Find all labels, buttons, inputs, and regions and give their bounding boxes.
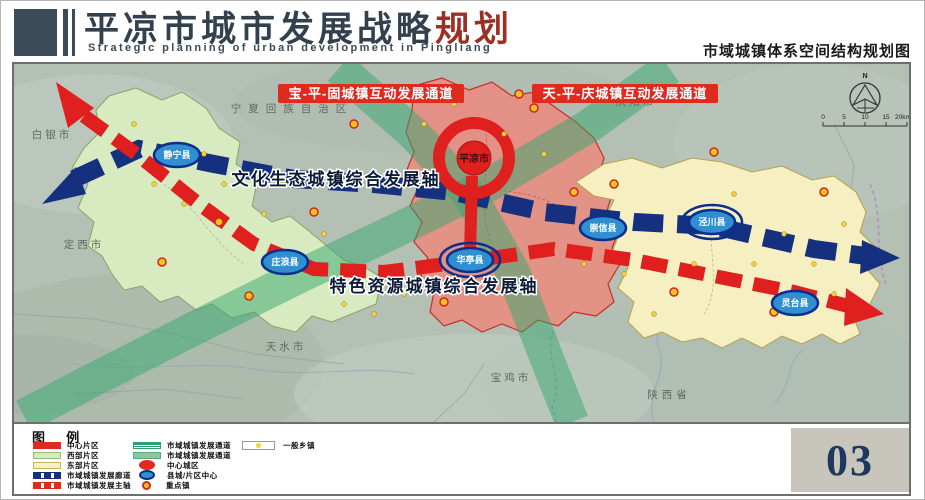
town-dot [342, 302, 347, 307]
legend-swatch-ellipse-red [139, 460, 155, 470]
key-town-dot [350, 120, 358, 128]
key-town-dot [710, 148, 718, 156]
city-marker: 泾川县 [682, 205, 742, 239]
town-dot [842, 222, 847, 227]
key-town-dot [820, 188, 828, 196]
legend-row: 重点镇 [133, 480, 231, 490]
page-subtitle-en: Strategic planning of urban development … [88, 42, 492, 54]
region-label: 陕西省 [647, 388, 691, 401]
banner-tian-ping-qing: 天-平-庆城镇互动发展通道 [532, 84, 718, 103]
town-dot [832, 292, 837, 297]
banner-tian-ping-qing-label: 天-平-庆城镇互动发展通道 [543, 86, 708, 101]
town-dot [502, 132, 507, 137]
city-marker-label: 泾川县 [698, 216, 725, 227]
city-marker-label: 灵台县 [780, 297, 808, 308]
scale-tick: 0 [821, 114, 825, 121]
key-town-dot [530, 104, 538, 112]
legend-swatch-ellipse-blue [139, 470, 155, 480]
key-town-dot [440, 298, 448, 306]
town-dot [622, 272, 627, 277]
legend: 图 例 中心片区西部片区东部片区市域城镇发展廊道市域城镇发展主轴 市域城镇发展通… [14, 424, 909, 494]
map-frame: 静宁县庄浪县华亭县崇信县泾川县灵台县 白银市定西市宁夏回族自治区庆阳市天水市宝鸡… [12, 62, 911, 496]
logo-bar-icon [72, 9, 75, 56]
legend-row: 市域城镇发展主轴 [33, 480, 131, 490]
axis-label-special-resource: 特色资源城镇综合发展轴 [330, 276, 539, 296]
city-marker-label: 华亭县 [456, 254, 483, 265]
town-dot [782, 232, 787, 237]
town-dot [182, 202, 187, 207]
city-marker: 灵台县 [772, 291, 818, 315]
legend-row: 市域城镇发展通道 [133, 450, 231, 460]
key-town-dot [570, 188, 578, 196]
town-dot [812, 262, 817, 267]
town-dot [322, 232, 327, 237]
legend-swatch-solid-red [33, 442, 61, 449]
town-dot [372, 312, 377, 317]
logo-square [14, 9, 57, 56]
legend-column-areas: 中心片区西部片区东部片区市域城镇发展廊道市域城镇发展主轴 [33, 440, 131, 490]
legend-row: 市域城镇发展廊道 [33, 470, 131, 480]
legend-swatch-dash-blue [33, 472, 61, 479]
town-dot [752, 262, 757, 267]
city-marker: 静宁县 [154, 143, 200, 167]
town-dot [582, 262, 587, 267]
key-town-dot [245, 292, 253, 300]
scale-tick: 5 [842, 114, 846, 121]
legend-swatch-channel-solid [133, 452, 161, 459]
key-town-dot [610, 180, 618, 188]
key-town-dot [310, 208, 318, 216]
town-dot [652, 312, 657, 317]
legend-label: 市域城镇发展主轴 [67, 480, 131, 491]
town-dot [262, 212, 267, 217]
legend-swatch-dot-box [242, 441, 275, 450]
legend-row: 县城/片区中心 [133, 470, 231, 480]
region-label: 天水市 [266, 340, 307, 353]
scale-tick: 10 [861, 114, 869, 121]
legend-row: 东部片区 [33, 460, 131, 470]
legend-label: 一般乡镇 [283, 440, 315, 451]
key-town-dot [515, 90, 523, 98]
legend-row: 市域城镇发展通道 [133, 440, 231, 450]
logo-bar-icon [63, 9, 68, 56]
legend-swatch-solid-green [33, 452, 61, 459]
city-marker: 崇信县 [580, 216, 626, 240]
town-dot [202, 152, 207, 157]
region-label: 宁夏回族自治区 [231, 102, 354, 115]
town-dot [692, 262, 697, 267]
legend-row: 中心城区 [133, 460, 231, 470]
map-canvas: 静宁县庄浪县华亭县崇信县泾川县灵台县 白银市定西市宁夏回族自治区庆阳市天水市宝鸡… [14, 64, 909, 422]
town-dot [222, 182, 227, 187]
legend-column-channels: 市域城镇发展通道市域城镇发展通道中心城区县城/片区中心重点镇 [133, 440, 231, 490]
key-town-dot [215, 218, 223, 226]
legend-swatch-channel-striped [133, 442, 161, 449]
town-dot [422, 122, 427, 127]
key-town-dot [670, 288, 678, 296]
legend-row: 中心片区 [33, 440, 131, 450]
axis-label-culture-eco: 文化生态城镇综合发展轴 [232, 169, 441, 189]
legend-swatch-solid-yellow [33, 462, 61, 469]
banner-bao-ping-gu-label: 宝-平-固城镇互动发展通道 [289, 86, 454, 101]
region-label: 白银市 [32, 128, 73, 141]
map-sheet-title: 市域城镇体系空间结构规划图 [703, 40, 911, 61]
legend-row: 西部片区 [33, 450, 131, 460]
legend-swatch-dash-red [33, 482, 61, 489]
scale-tick: 20km [895, 114, 909, 121]
city-marker-label: 静宁县 [163, 149, 190, 160]
legend-row: 一般乡镇 [242, 440, 315, 450]
compass-north-label: N [862, 73, 867, 80]
legend-column-towns: 一般乡镇 [242, 440, 315, 450]
city-marker: 华亭县 [440, 243, 500, 277]
legend-label: 重点镇 [166, 480, 190, 491]
town-dot [732, 192, 737, 197]
legend-swatch-circle-orange [142, 481, 151, 490]
map-area: 静宁县庄浪县华亭县崇信县泾川县灵台县 白银市定西市宁夏回族自治区庆阳市天水市宝鸡… [14, 64, 909, 424]
scale-tick: 15 [882, 114, 890, 121]
town-dot [152, 182, 157, 187]
page-number: 03 [791, 428, 909, 492]
key-town-dot [158, 258, 166, 266]
town-dot [542, 152, 547, 157]
city-marker: 庄浪县 [262, 250, 308, 274]
town-dot [132, 122, 137, 127]
region-label: 定西市 [64, 238, 105, 251]
region-label: 宝鸡市 [491, 371, 532, 384]
city-marker-label: 崇信县 [589, 222, 616, 233]
center-city-label: 平凉市 [459, 152, 489, 165]
city-marker-label: 庄浪县 [271, 256, 298, 267]
banner-bao-ping-gu: 宝-平-固城镇互动发展通道 [278, 84, 464, 103]
